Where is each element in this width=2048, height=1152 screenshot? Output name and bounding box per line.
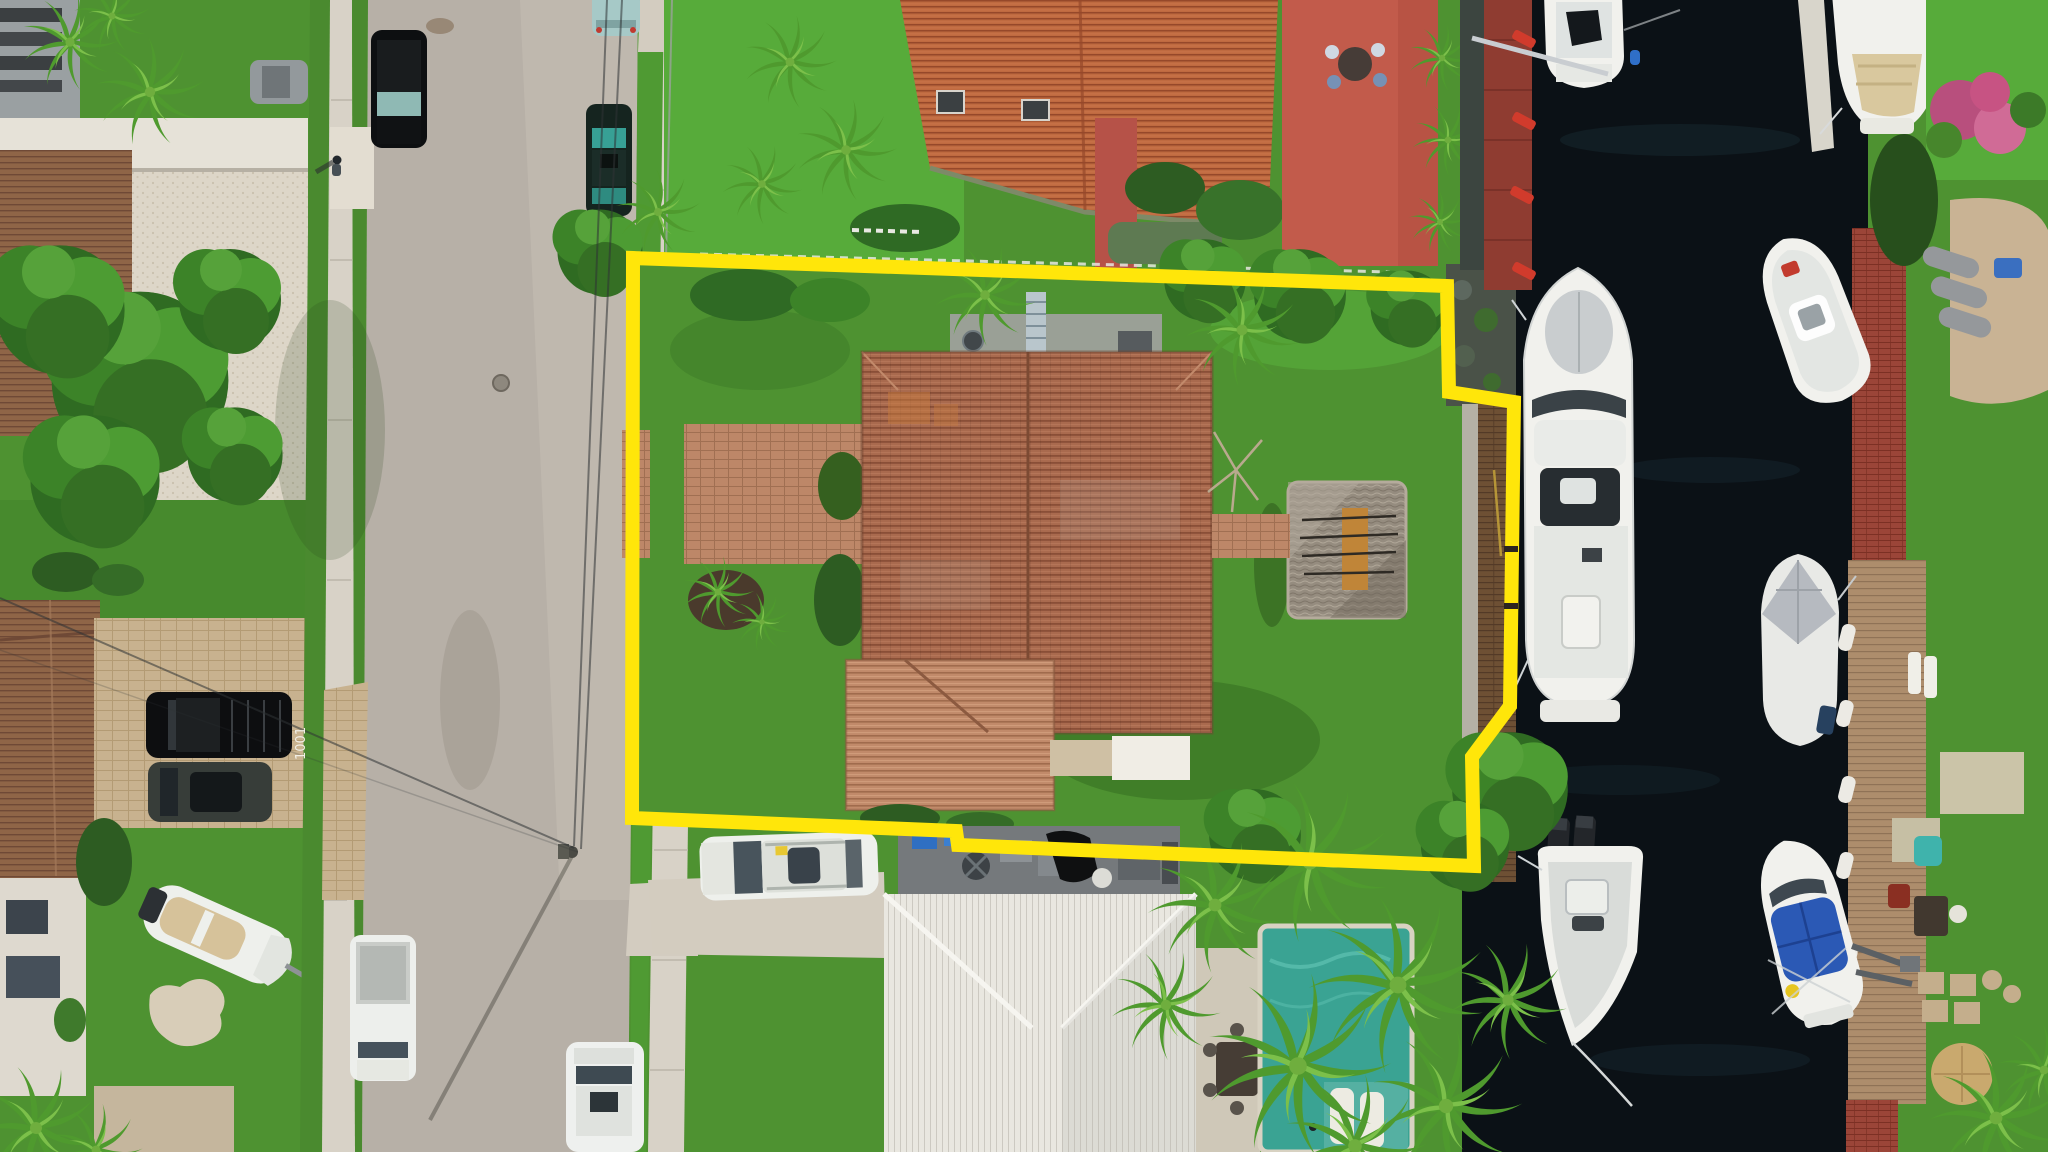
east-brick-dock (1852, 228, 1906, 562)
white-patio-pad (1112, 736, 1190, 780)
hedge (76, 818, 132, 906)
skylight (937, 91, 964, 113)
white-suv-driveway (699, 831, 879, 901)
black-suv-parked (371, 30, 427, 148)
skylight (1022, 100, 1049, 120)
sun-lounger (1924, 656, 1937, 698)
shrub-bed (690, 269, 800, 321)
sun-lounger (1908, 652, 1921, 694)
manhole-cover (493, 375, 509, 391)
gravel-patch (94, 1086, 234, 1152)
left-south-apron (322, 682, 368, 900)
dark-suv (148, 762, 272, 822)
concrete-pad (1940, 752, 2024, 814)
yacht-at-private-dock (1512, 268, 1634, 722)
ac-unit (963, 331, 983, 351)
sand-path (1050, 740, 1112, 776)
ladder (1026, 292, 1046, 352)
tiki-path (1212, 514, 1290, 558)
tree-shadow (275, 300, 385, 560)
teal-kayak (1914, 836, 1942, 866)
swim-platform (1540, 700, 1620, 722)
curb-address: 1001 (294, 727, 309, 760)
tiki-ridge-beam (1342, 508, 1368, 590)
planter-bed (818, 452, 866, 520)
garage-wing-roof (846, 660, 1054, 810)
shrubs (1870, 134, 1938, 266)
teal-car-parked (592, 0, 640, 36)
white-pickup-parked (350, 935, 416, 1081)
dark-green-car-parked (586, 104, 632, 216)
yellow-decal (775, 846, 787, 855)
black-pickup-truck (146, 692, 292, 758)
aerial-photo: 1001 (0, 0, 2048, 1152)
satellite-dish (1092, 868, 1112, 888)
white-suv-parked (566, 1042, 644, 1152)
left-house-wall (0, 878, 86, 1096)
gray-car (250, 60, 308, 104)
